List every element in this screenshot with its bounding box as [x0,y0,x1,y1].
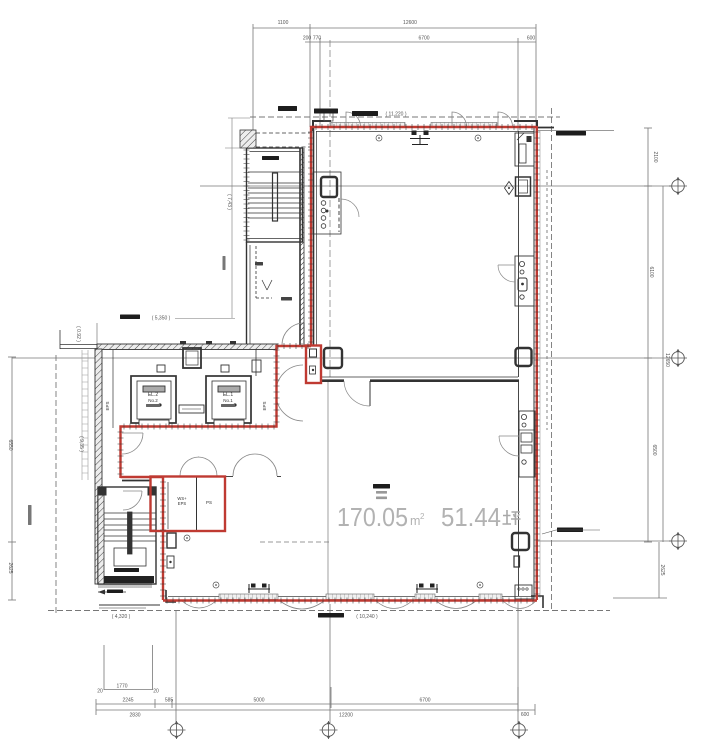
svg-text:5000: 5000 [253,698,264,704]
svg-text:EPS: EPS [262,401,267,410]
svg-text:( 0.92 ): ( 0.92 ) [75,326,81,342]
svg-text:2245: 2245 [122,698,133,704]
svg-text:12650: 12650 [664,353,670,367]
svg-text:6700: 6700 [419,698,430,704]
svg-text:1100: 1100 [278,20,289,26]
svg-text:2: 2 [420,512,425,521]
svg-text:No.2: No.2 [148,398,158,403]
svg-text:200: 200 [303,36,312,42]
svg-text:600: 600 [527,36,536,42]
svg-text:51.44: 51.44 [441,502,501,532]
svg-text:2625: 2625 [7,562,13,573]
svg-text:( 10,240 ): ( 10,240 ) [356,614,378,620]
svg-text:No.1: No.1 [223,398,233,403]
svg-text:EPS: EPS [105,401,110,410]
svg-text:20: 20 [97,689,103,695]
svg-text:( 11,220 ): ( 11,220 ) [385,112,406,118]
svg-text:12600: 12600 [403,20,417,26]
svg-text:2830: 2830 [129,713,140,719]
svg-text:( 4,320 ): ( 4,320 ) [112,614,131,620]
svg-text:12200: 12200 [339,713,353,719]
svg-text:770: 770 [313,36,322,42]
svg-text:m: m [410,514,420,528]
svg-text:20: 20 [153,689,159,695]
svg-text:170.05: 170.05 [337,502,408,532]
svg-text:2625: 2625 [659,564,665,575]
svg-text:2100: 2100 [652,151,658,162]
svg-text:600: 600 [521,712,530,718]
svg-text:( 5,350 ): ( 5,350 ) [152,316,171,322]
svg-text:6100: 6100 [648,266,654,277]
svg-text:( 7,43 ): ( 7,43 ) [226,194,232,210]
svg-text:585: 585 [165,698,174,704]
svg-text:6500: 6500 [651,444,657,455]
svg-text:EPS: EPS [178,501,187,506]
svg-text:1770: 1770 [116,684,127,690]
svg-text:6700: 6700 [418,36,429,42]
svg-text:PS: PS [206,500,212,505]
svg-text:6550: 6550 [7,439,13,450]
svg-text:( 9,35 ): ( 9,35 ) [78,436,84,452]
